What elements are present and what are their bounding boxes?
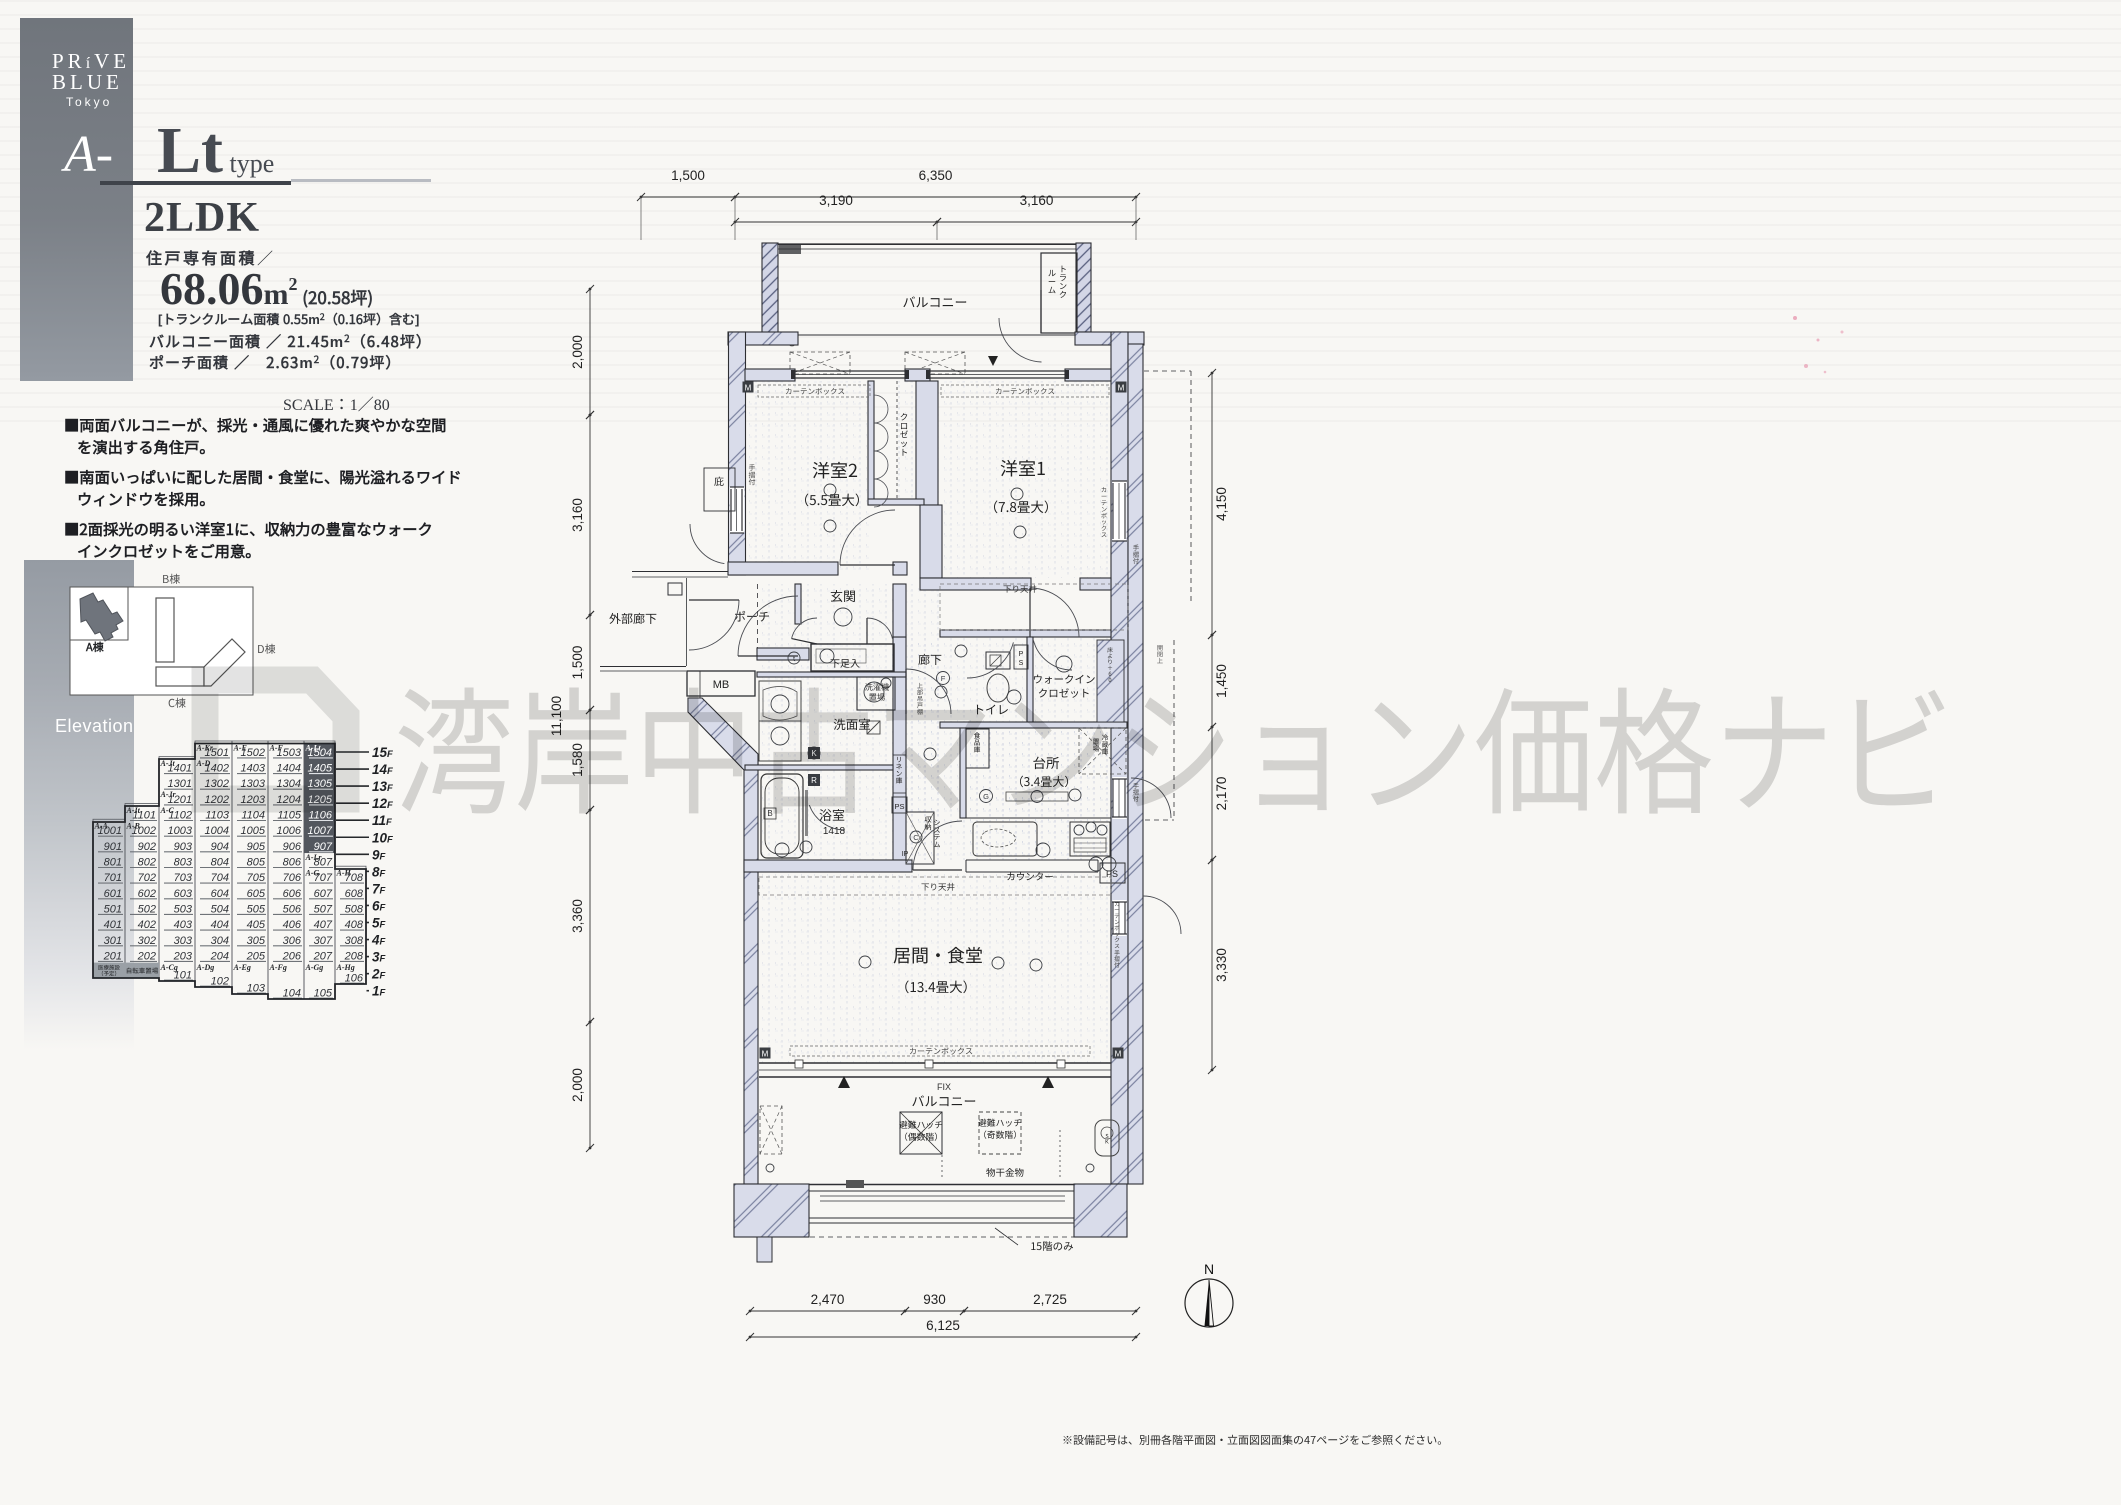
svg-text:冷蔵庫: 冷蔵庫 (1102, 732, 1109, 756)
svg-text:MB: MB (713, 679, 730, 691)
svg-text:下り天井: 下り天井 (1003, 583, 1037, 595)
svg-text:（13.4畳大）: （13.4畳大） (896, 976, 976, 996)
svg-text:クロゼット: クロゼット (900, 411, 909, 458)
svg-text:ポーチ: ポーチ (734, 608, 770, 625)
svg-text:IP: IP (902, 851, 909, 858)
svg-text:6,125: 6,125 (926, 1318, 960, 1333)
svg-text:廊下: 廊下 (918, 651, 942, 668)
svg-text:3,360: 3,360 (570, 899, 585, 933)
svg-text:洋室1: 洋室1 (1000, 455, 1046, 481)
svg-text:開閉上: 開閉上 (1157, 643, 1163, 665)
svg-text:K: K (811, 749, 817, 758)
svg-text:上部吊戸棚: 上部吊戸棚 (917, 681, 923, 716)
svg-text:カーテンボックス: カーテンボックス (1114, 899, 1120, 950)
svg-text:カーテンボックス: カーテンボックス (909, 1046, 973, 1057)
svg-text:SK: SK (1105, 1132, 1109, 1146)
svg-text:カウンター: カウンター (1006, 869, 1054, 883)
svg-text:食品庫: 食品庫 (974, 730, 981, 754)
svg-text:1418: 1418 (823, 826, 846, 837)
svg-text:外部廊下: 外部廊下 (609, 610, 657, 627)
svg-text:G: G (983, 792, 989, 801)
svg-text:カーテンボックス: カーテンボックス (785, 386, 845, 397)
svg-text:下り天井: 下り天井 (921, 881, 955, 893)
svg-text:6,350: 6,350 (919, 168, 953, 183)
svg-text:3,160: 3,160 (570, 498, 585, 532)
svg-text:1,450: 1,450 (1214, 664, 1229, 698)
svg-text:2,000: 2,000 (570, 335, 585, 369)
svg-text:1,580: 1,580 (570, 743, 585, 777)
svg-text:収納: 収納 (925, 815, 932, 832)
svg-text:3,190: 3,190 (819, 193, 853, 208)
svg-text:F: F (941, 674, 946, 683)
svg-text:2,170: 2,170 (1214, 777, 1229, 811)
svg-text:クロゼット: クロゼット (1038, 686, 1091, 701)
svg-text:（3.4畳大）: （3.4畳大） (1012, 773, 1077, 790)
svg-text:手摺付: 手摺付 (1133, 781, 1139, 803)
svg-text:M: M (1115, 1050, 1122, 1059)
svg-text:物干金物: 物干金物 (986, 1165, 1025, 1179)
svg-text:PS: PS (894, 802, 904, 811)
svg-text:バルコニー: バルコニー (902, 292, 967, 311)
svg-text:置場: 置場 (1093, 736, 1100, 753)
svg-text:3,160: 3,160 (1020, 193, 1054, 208)
svg-text:11,100: 11,100 (549, 696, 564, 736)
svg-text:カーテンボックス: カーテンボックス (995, 386, 1055, 397)
svg-text:台所: 台所 (1033, 752, 1061, 772)
svg-text:15階のみ: 15階のみ (1030, 1239, 1073, 1254)
svg-text:M: M (1118, 384, 1125, 393)
svg-text:P: P (1019, 651, 1024, 658)
svg-text:ウォークイン: ウォークイン (1033, 672, 1096, 687)
svg-text:トランク: トランク (1059, 263, 1067, 301)
svg-text:4,150: 4,150 (1214, 487, 1229, 521)
svg-text:※設備記号は、別冊各階平面図・立面図図面集の47ページをご参: ※設備記号は、別冊各階平面図・立面図図面集の47ページをご参照ください。 (1062, 1432, 1448, 1448)
svg-text:置場: 置場 (869, 691, 885, 703)
svg-text:2,725: 2,725 (1033, 1292, 1067, 1307)
svg-text:2,000: 2,000 (570, 1068, 585, 1102)
svg-text:玄関: 玄関 (830, 586, 856, 605)
svg-text:930: 930 (923, 1292, 946, 1307)
svg-text:カーテンボックス: カーテンボックス (1101, 485, 1107, 539)
svg-text:R: R (811, 776, 817, 785)
svg-text:システム: システム (934, 818, 941, 850)
svg-text:リネン庫: リネン庫 (896, 754, 903, 785)
svg-text:B: B (767, 809, 772, 818)
svg-text:浴室: 浴室 (819, 805, 845, 824)
svg-text:ルーム: ルーム (1048, 267, 1056, 296)
svg-text:洗面室: 洗面室 (833, 714, 871, 733)
svg-text:M: M (762, 1050, 769, 1059)
svg-text:2,470: 2,470 (811, 1292, 845, 1307)
svg-text:3,330: 3,330 (1214, 948, 1229, 982)
svg-text:（5.5畳大）: （5.5畳大） (796, 489, 869, 509)
svg-text:手摺付: 手摺付 (1114, 948, 1120, 969)
svg-text:M: M (745, 384, 752, 393)
svg-text:N: N (1204, 1261, 1214, 1277)
svg-text:洋室2: 洋室2 (812, 457, 858, 483)
svg-text:トイレ: トイレ (973, 701, 1009, 718)
svg-text:下足入: 下足入 (830, 655, 860, 670)
svg-text:居間・食堂: 居間・食堂 (893, 942, 983, 968)
svg-text:（奇数階）: （奇数階） (978, 1128, 1022, 1141)
svg-text:C: C (913, 833, 919, 842)
svg-text:1,500: 1,500 (570, 646, 585, 680)
svg-text:S: S (1019, 660, 1024, 667)
svg-text:手摺付: 手摺付 (749, 463, 756, 488)
svg-text:庇: 庇 (714, 473, 724, 488)
svg-text:1,500: 1,500 (671, 168, 705, 183)
svg-text:バルコニー: バルコニー (911, 1091, 976, 1110)
svg-text:手摺付: 手摺付 (1133, 542, 1140, 566)
svg-text:（偶数階）: （偶数階） (899, 1130, 943, 1143)
